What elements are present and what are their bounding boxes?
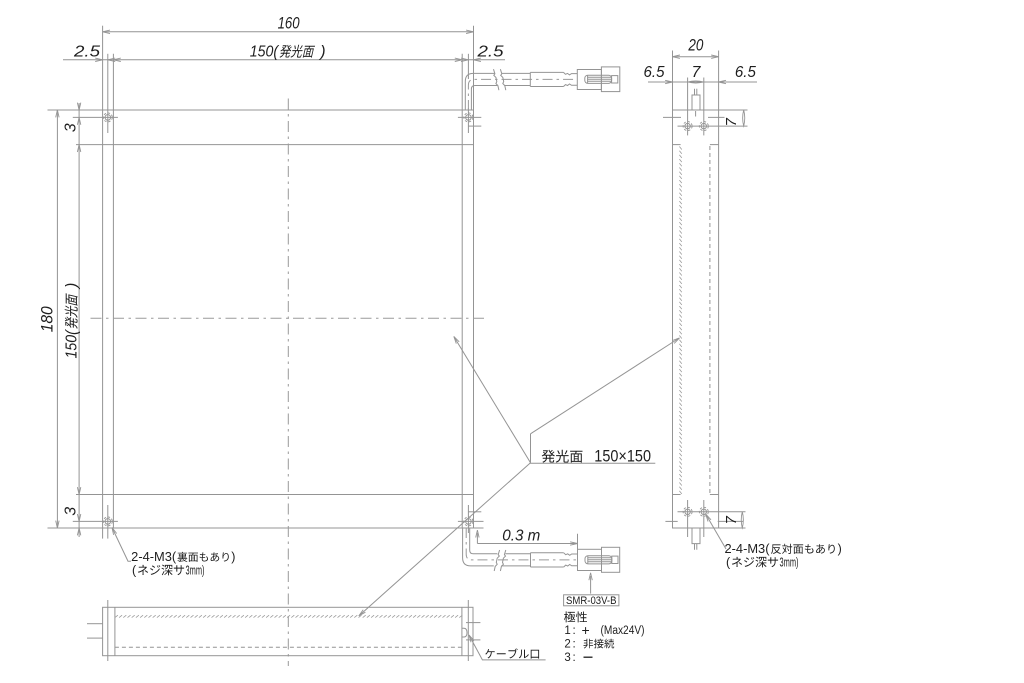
svg-text:1: 1 — [564, 625, 570, 637]
svg-text::: : — [573, 625, 576, 637]
svg-text:2.5: 2.5 — [73, 44, 100, 61]
svg-text:SMR-03V-B: SMR-03V-B — [566, 595, 617, 607]
svg-text:20: 20 — [688, 36, 704, 54]
svg-text:3: 3 — [564, 652, 570, 664]
svg-text:3mm): 3mm) — [186, 564, 205, 578]
svg-text:6.5: 6.5 — [735, 64, 756, 81]
svg-text::: : — [573, 652, 576, 664]
svg-text::: : — [573, 639, 576, 651]
svg-text:3: 3 — [63, 507, 80, 516]
svg-text:2-4-M3(: 2-4-M3( — [725, 542, 771, 556]
svg-text:): ) — [318, 44, 325, 61]
svg-text:): ) — [231, 550, 235, 564]
svg-text:7: 7 — [723, 118, 740, 127]
svg-text:+: + — [582, 622, 590, 638]
svg-text:(Max24V): (Max24V) — [601, 625, 645, 637]
svg-text:6.5: 6.5 — [644, 64, 665, 81]
svg-text:180: 180 — [38, 306, 56, 333]
svg-text:2: 2 — [564, 639, 570, 651]
svg-text:): ) — [838, 542, 842, 556]
svg-text:0.3 m: 0.3 m — [502, 528, 540, 545]
svg-text:3: 3 — [63, 123, 80, 132]
svg-text:): ) — [64, 283, 81, 290]
svg-text:7: 7 — [692, 64, 702, 81]
svg-text:160: 160 — [278, 15, 301, 33]
svg-text:150(: 150( — [64, 329, 81, 359]
svg-text:3mm): 3mm) — [780, 556, 799, 570]
svg-text:7: 7 — [723, 516, 740, 525]
svg-text:2-4-M3(: 2-4-M3( — [131, 550, 177, 564]
svg-text:2.5: 2.5 — [476, 44, 503, 61]
svg-text:150(: 150( — [250, 44, 280, 61]
